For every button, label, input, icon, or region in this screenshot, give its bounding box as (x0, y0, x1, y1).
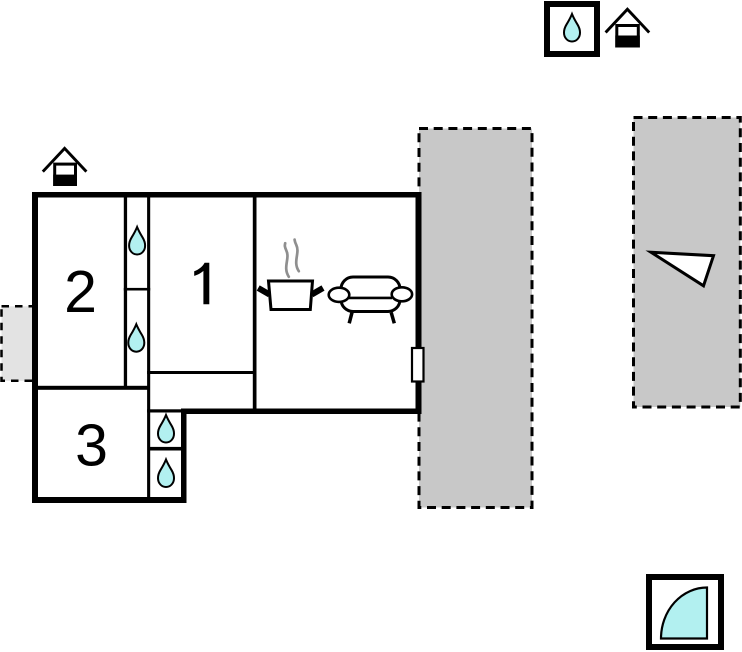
svg-text:2: 2 (64, 259, 97, 325)
svg-text:3: 3 (75, 412, 108, 478)
